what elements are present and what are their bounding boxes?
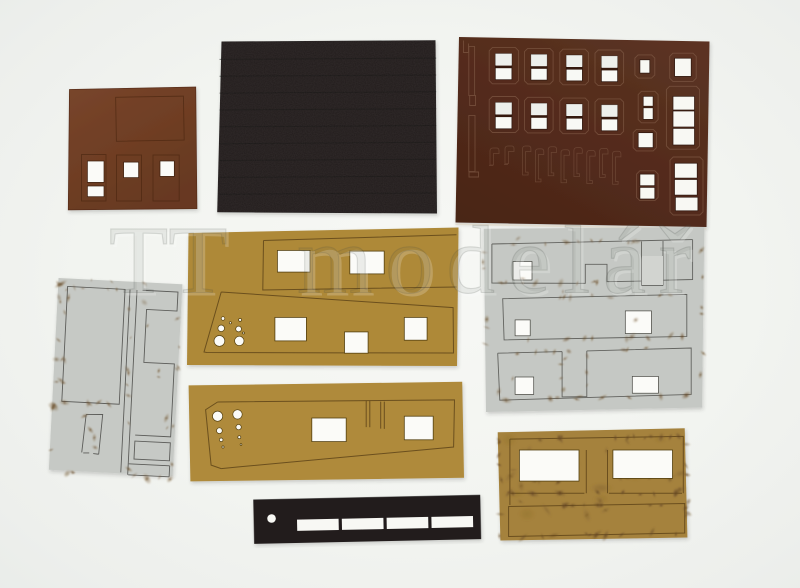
svg-text:TT: TT	[109, 207, 228, 314]
svg-text:modelář: modelář	[297, 207, 691, 314]
